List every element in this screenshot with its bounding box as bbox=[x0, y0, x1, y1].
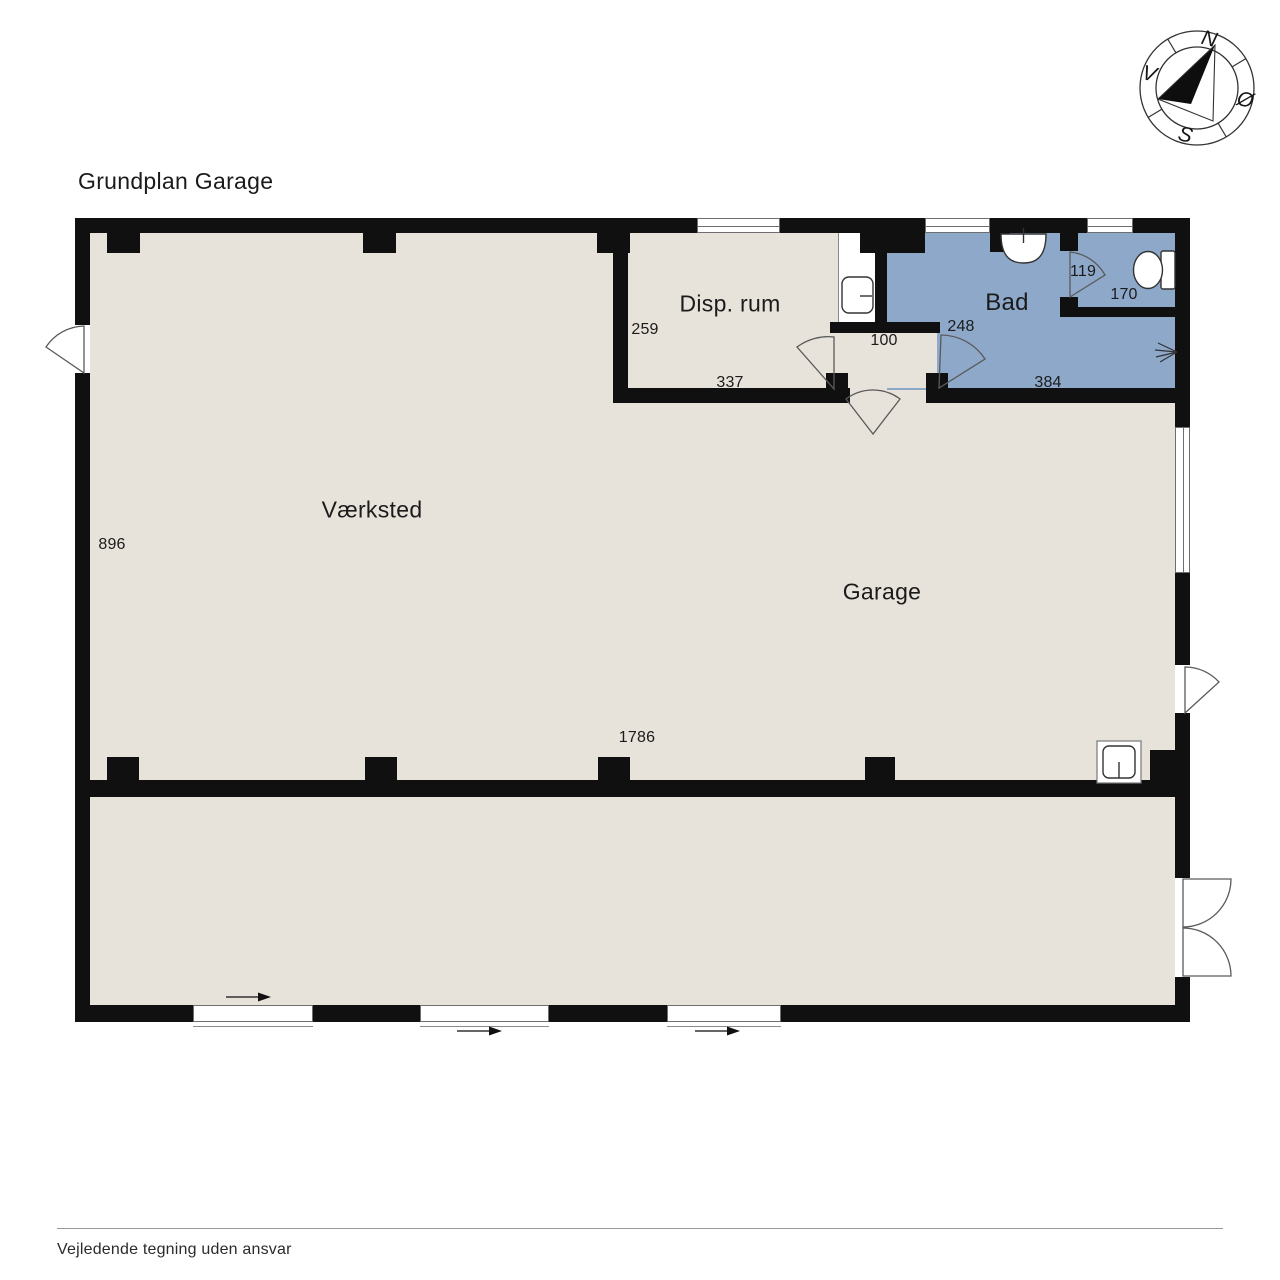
footer-disclaimer: Vejledende tegning uden ansvar bbox=[57, 1241, 292, 1259]
wall-niche-right bbox=[875, 253, 887, 322]
pillar-top-2 bbox=[363, 233, 396, 253]
arrow-head-2 bbox=[489, 1027, 502, 1036]
dim-384: 384 bbox=[1034, 374, 1061, 392]
window-top-disprum bbox=[697, 218, 780, 233]
window-mullion bbox=[698, 226, 779, 227]
door-opening-left bbox=[75, 325, 90, 373]
dim-170: 170 bbox=[1110, 286, 1137, 304]
compass-label-south: S bbox=[1176, 122, 1195, 148]
arrow-head-3 bbox=[727, 1027, 740, 1036]
floor-annex-strip bbox=[90, 797, 1175, 1005]
compass-inner-ring bbox=[1156, 47, 1238, 129]
compass-tick bbox=[1168, 39, 1176, 53]
door-opening-right bbox=[1175, 665, 1190, 713]
dim-896: 896 bbox=[98, 536, 125, 554]
floorplan-page: N Ø S V Grundplan Garage Værksted Garage… bbox=[0, 0, 1280, 1280]
compass-ticks bbox=[1148, 39, 1246, 137]
pillar-mid-4 bbox=[865, 757, 895, 780]
pillar-bath-window bbox=[990, 233, 1010, 252]
sill-bottom-3 bbox=[667, 1026, 781, 1027]
dim-248: 248 bbox=[947, 318, 974, 336]
window-mullion bbox=[926, 226, 989, 227]
dim-119: 119 bbox=[1070, 263, 1096, 281]
compass-tick bbox=[1148, 109, 1162, 117]
compass-label-east: Ø bbox=[1234, 87, 1258, 114]
dim-1786: 1786 bbox=[619, 729, 655, 747]
compass-label-north: N bbox=[1199, 26, 1220, 52]
window-top-wc bbox=[1087, 218, 1133, 233]
window-mullion bbox=[1088, 226, 1132, 227]
compass-rose: N Ø S V bbox=[1140, 26, 1258, 148]
dim-337: 337 bbox=[716, 374, 743, 392]
door-swing-right-exterior bbox=[1185, 667, 1219, 713]
room-label-disprum: Disp. rum bbox=[679, 291, 780, 318]
footer-divider bbox=[57, 1228, 1223, 1229]
slide-opening-bottom-3 bbox=[667, 1005, 781, 1022]
pillar-mid-1 bbox=[107, 757, 139, 780]
wall-outer-top bbox=[75, 218, 1190, 233]
sill-bottom-1 bbox=[193, 1026, 313, 1027]
wall-hall-stub-right bbox=[926, 373, 948, 403]
double-door-opening-right bbox=[1175, 878, 1190, 977]
wall-niche-pillar bbox=[860, 233, 925, 253]
compass-needle-south bbox=[1158, 45, 1215, 121]
compass-tick bbox=[1232, 59, 1246, 67]
window-mullion bbox=[1183, 428, 1184, 572]
double-door-leaf-top bbox=[1183, 879, 1231, 927]
slide-opening-bottom-1 bbox=[193, 1005, 313, 1022]
compass-outer-ring bbox=[1140, 31, 1254, 145]
wall-middle bbox=[90, 780, 1175, 797]
sill-bottom-2 bbox=[420, 1026, 549, 1027]
double-door-leaf-bottom bbox=[1183, 928, 1231, 976]
wall-wc-bottom bbox=[1060, 307, 1175, 317]
wall-pier-right bbox=[1150, 750, 1190, 797]
room-label-garage: Garage bbox=[843, 579, 922, 606]
room-label-vaerksted: Værksted bbox=[322, 497, 423, 524]
page-title: Grundplan Garage bbox=[78, 168, 273, 195]
room-label-bad: Bad bbox=[985, 289, 1029, 317]
window-right-garage bbox=[1175, 427, 1190, 573]
dim-100: 100 bbox=[870, 332, 897, 350]
wall-hall-stub-left bbox=[826, 373, 848, 403]
slide-opening-bottom-2 bbox=[420, 1005, 549, 1022]
wall-wc-stub-top bbox=[1060, 233, 1078, 251]
compass-needle-north bbox=[1158, 45, 1215, 104]
pillar-mid-2 bbox=[365, 757, 397, 780]
pillar-top-1 bbox=[107, 233, 140, 253]
pillar-mid-3 bbox=[598, 757, 630, 780]
wall-disprum-left bbox=[613, 233, 628, 390]
dim-259: 259 bbox=[631, 321, 658, 339]
compass-tick bbox=[1218, 123, 1226, 137]
window-top-bath bbox=[925, 218, 990, 233]
compass-label-west: V bbox=[1140, 61, 1161, 87]
